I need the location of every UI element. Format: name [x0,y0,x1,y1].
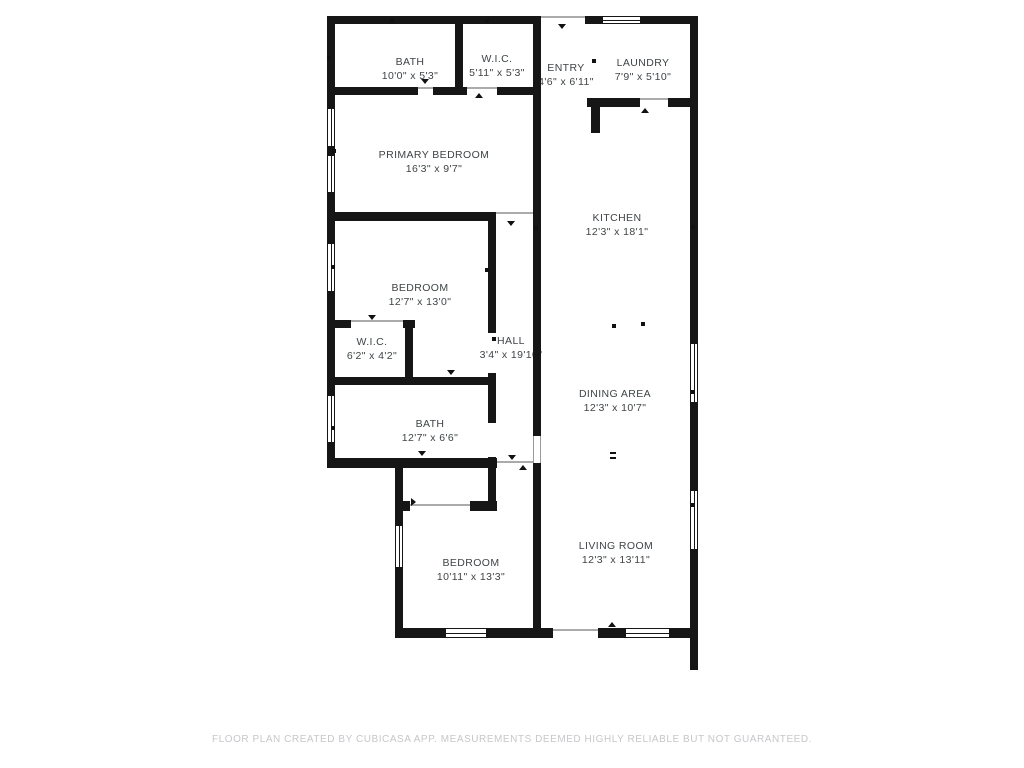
tick-left-primary [332,149,336,153]
room-dims: 12'7" x 6'6" [402,431,459,445]
wall-hall-west-a [488,212,496,333]
room-dims: 12'3" x 10'7" [579,401,651,415]
wall-top-a [327,16,541,24]
wall-bathrow-south-c [497,87,534,95]
opening-wic-door [467,87,497,89]
wall-bedroom2-north-a [395,501,410,511]
wall-primary-south [327,212,495,221]
tick-living-window [691,503,695,507]
tick-left-bedroom [331,265,335,269]
room-name: ENTRY [538,61,594,75]
room-dims: 10'0" x 5'3" [382,69,439,83]
room-label-living-room: LIVING ROOM 12'3" x 13'11" [579,539,653,567]
wall-top-b [585,16,602,24]
room-dims: 12'3" x 18'1" [586,225,649,239]
room-dims: 16'3" x 9'7" [379,162,490,176]
room-name: BATH [402,417,459,431]
room-label-dining-area: DINING AREA 12'3" x 10'7" [579,387,651,415]
room-dims: 12'7" x 13'0" [389,295,452,309]
opening-dining-passage [533,436,541,463]
wall-laundry-foot [591,107,600,133]
room-label-primary-bedroom: PRIMARY BEDROOM 16'3" x 9'7" [379,148,490,176]
patio-slider-marker [608,622,616,627]
window-bedroom2-south [445,628,487,638]
room-name: W.I.C. [469,52,525,66]
opening-bath-door [418,87,433,89]
wic-door-marker [475,93,483,98]
wall-wic2-north-a [330,320,351,328]
tick-kitchen-east [691,225,695,229]
opening-primary-door [495,212,533,214]
room-name: W.I.C. [347,335,397,349]
window-primary-west-1 [327,108,335,147]
hall-threshold-marker-a [508,455,516,460]
window-laundry-north [602,16,641,24]
room-name: LIVING ROOM [579,539,653,553]
window-bath2-west [327,395,335,443]
primary-door-marker [507,221,515,226]
tick-hall-left [492,337,496,341]
tick-bedroom-east [485,268,489,272]
dining-living-boundary-marker [610,452,616,459]
room-name: LAUNDRY [615,56,672,70]
window-living-east [690,490,698,550]
wall-bottom-b [487,628,553,638]
room-label-wic: W.I.C. 5'11" x 5'3" [469,52,525,80]
room-name: BATH [382,55,439,69]
room-dims: 12'3" x 13'11" [579,553,653,567]
room-name: BEDROOM [437,556,505,570]
tick-kitchen-west [534,226,538,230]
window-dining-east [690,343,698,403]
wall-bath2-south [327,458,497,468]
entry-door-marker [558,24,566,29]
floor-plan-canvas: BATH 10'0" x 5'3" W.I.C. 5'11" x 5'3" EN… [0,0,1024,768]
wall-wic2-south [327,377,490,385]
opening-hall-threshold [497,461,533,463]
hall-threshold-marker-b [519,465,527,470]
wall-bottom-d [670,628,698,638]
wall-hall-west-b [488,373,496,423]
room-label-entry: ENTRY 4'6" x 6'11" [538,61,594,89]
room-dims: 6'2" x 4'2" [347,349,397,363]
wall-laundry-south-b [668,98,698,107]
opening-wic2-door [351,320,403,322]
wall-bathrow-south-b [433,87,467,95]
bath2-south-door-marker [418,451,426,456]
opening-laundry-door [640,98,668,100]
window-bedroom2-west [395,525,403,568]
bedroom2-door-marker [411,498,416,506]
bath2-north-door-marker [447,370,455,375]
room-dims: 7'9" x 5'10" [615,70,672,84]
room-name: PRIMARY BEDROOM [379,148,490,162]
laundry-door-marker [641,108,649,113]
room-dims: 10'11" x 13'3" [437,570,505,584]
room-name: DINING AREA [579,387,651,401]
tick-dining-window [691,390,695,394]
wall-bedroom2-north-b [470,501,497,511]
bath-door-marker [421,79,429,84]
wall-bottom-c [598,628,625,638]
room-label-bath: BATH 10'0" x 5'3" [382,55,439,83]
wall-bath-wic-divider [455,16,463,95]
room-label-laundry: LAUNDRY 7'9" x 5'10" [615,56,672,84]
tick-kitchen-dining-b [641,322,645,326]
window-living-south [625,628,670,638]
wall-kitchen-west-lower [533,463,541,631]
opening-entry-door [541,16,585,18]
room-label-bath2: BATH 12'7" x 6'6" [402,417,459,445]
room-name: BEDROOM [389,281,452,295]
room-name: KITCHEN [586,211,649,225]
tick-entry-laundry [592,59,596,63]
tick-kitchen-dining-a [612,324,616,328]
footer-disclaimer: FLOOR PLAN CREATED BY CUBICASA APP. MEAS… [0,734,1024,745]
room-label-bedroom: BEDROOM 12'7" x 13'0" [389,281,452,309]
tick-top-2 [485,19,489,23]
room-label-kitchen: KITCHEN 12'3" x 18'1" [586,211,649,239]
tick-left-bath [327,56,331,60]
window-primary-west-2 [327,155,335,193]
wic2-door-marker [368,315,376,320]
room-dims: 5'11" x 5'3" [469,66,525,80]
room-dims: 4'6" x 6'11" [538,75,594,89]
room-label-wic2: W.I.C. 6'2" x 4'2" [347,335,397,363]
wall-bathrow-south-a [327,87,418,95]
opening-patio-slider [553,629,598,631]
tick-left-bath2 [331,426,335,430]
opening-bedroom2-door [410,504,470,506]
wall-laundry-south-a [587,98,640,107]
room-label-bedroom2: BEDROOM 10'11" x 13'3" [437,556,505,584]
wall-wic2-east [405,320,413,378]
tick-top-1 [390,19,394,23]
